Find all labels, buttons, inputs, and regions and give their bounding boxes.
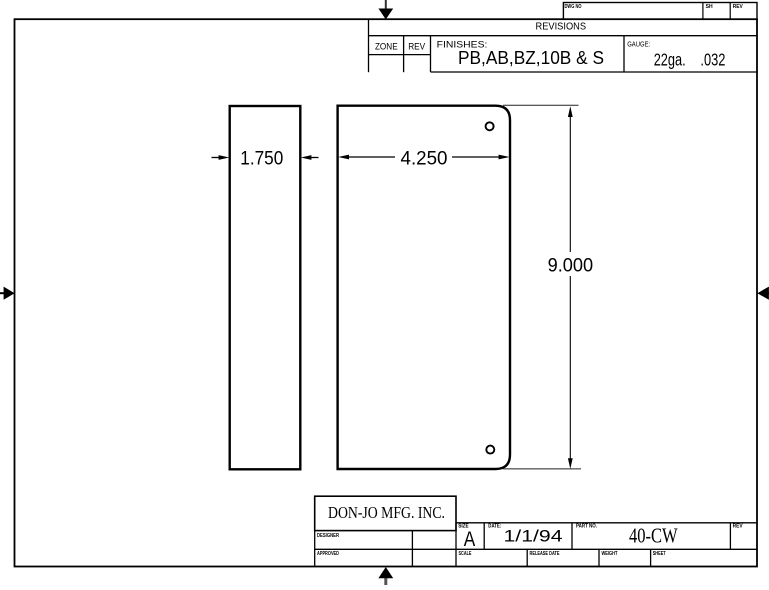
svg-text:PB,AB,BZ,10B & S: PB,AB,BZ,10B & S xyxy=(458,48,604,68)
svg-text:REV: REV xyxy=(408,41,426,52)
svg-text:ZONE: ZONE xyxy=(375,41,398,52)
svg-text:40-CW: 40-CW xyxy=(629,523,678,547)
svg-text:SCALE: SCALE xyxy=(459,551,473,557)
svg-text:4.250: 4.250 xyxy=(401,149,448,170)
svg-text:DATE:: DATE: xyxy=(488,524,501,530)
svg-text:REV: REV xyxy=(733,524,744,530)
svg-text:1.750: 1.750 xyxy=(240,149,283,170)
svg-text:DESIGNER: DESIGNER xyxy=(317,533,339,539)
svg-text:9.000: 9.000 xyxy=(548,255,594,276)
svg-text:DWG NO: DWG NO xyxy=(565,4,582,10)
svg-text:22ga.: 22ga. xyxy=(654,50,686,70)
svg-text:1/1/94: 1/1/94 xyxy=(504,527,563,546)
svg-text:A: A xyxy=(464,527,476,551)
svg-text:REV: REV xyxy=(733,4,744,10)
svg-text:APPROVED: APPROVED xyxy=(317,551,339,557)
svg-text:GAUGE:: GAUGE: xyxy=(627,42,650,49)
svg-text:SH: SH xyxy=(706,4,713,10)
svg-text:RELEASE DATE: RELEASE DATE xyxy=(530,551,561,557)
svg-text:.032: .032 xyxy=(700,50,725,70)
svg-text:REVISIONS: REVISIONS xyxy=(536,22,587,33)
svg-text:DON-JO MFG. INC.: DON-JO MFG. INC. xyxy=(328,503,445,522)
svg-text:PART NO.: PART NO. xyxy=(576,524,598,530)
svg-text:SHEET: SHEET xyxy=(653,551,666,557)
svg-text:WEIGHT: WEIGHT xyxy=(602,551,618,557)
